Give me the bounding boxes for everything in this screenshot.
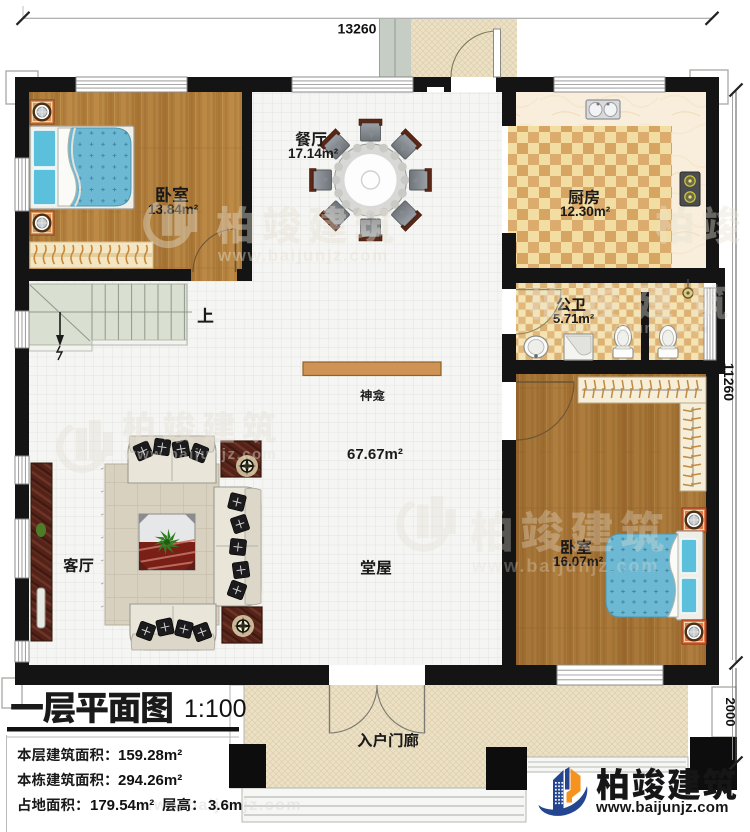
svg-text:11260: 11260 <box>721 363 737 401</box>
svg-text:294.26m²: 294.26m² <box>118 772 182 789</box>
svg-text:www.baijunjz.com: www.baijunjz.com <box>123 446 277 463</box>
svg-text:17.14m²: 17.14m² <box>288 146 339 161</box>
svg-text:13260: 13260 <box>338 21 377 37</box>
svg-text:179.54m²: 179.54m² <box>90 797 154 814</box>
svg-text:67.67m²: 67.67m² <box>347 446 403 463</box>
svg-text:www.baijunjz.com: www.baijunjz.com <box>217 246 389 265</box>
svg-text:www.baijunjz.com: www.baijunjz.com <box>559 320 709 337</box>
svg-text:3.6m: 3.6m <box>208 797 242 814</box>
svg-text:www.baijunjz.com: www.baijunjz.com <box>595 799 729 816</box>
svg-text:2000: 2000 <box>723 698 738 727</box>
svg-text:159.28m²: 159.28m² <box>118 747 182 764</box>
svg-text:www.baijunjz.com: www.baijunjz.com <box>471 556 659 576</box>
svg-text:1:100: 1:100 <box>184 695 247 723</box>
svg-text:12.30m²: 12.30m² <box>560 204 611 219</box>
